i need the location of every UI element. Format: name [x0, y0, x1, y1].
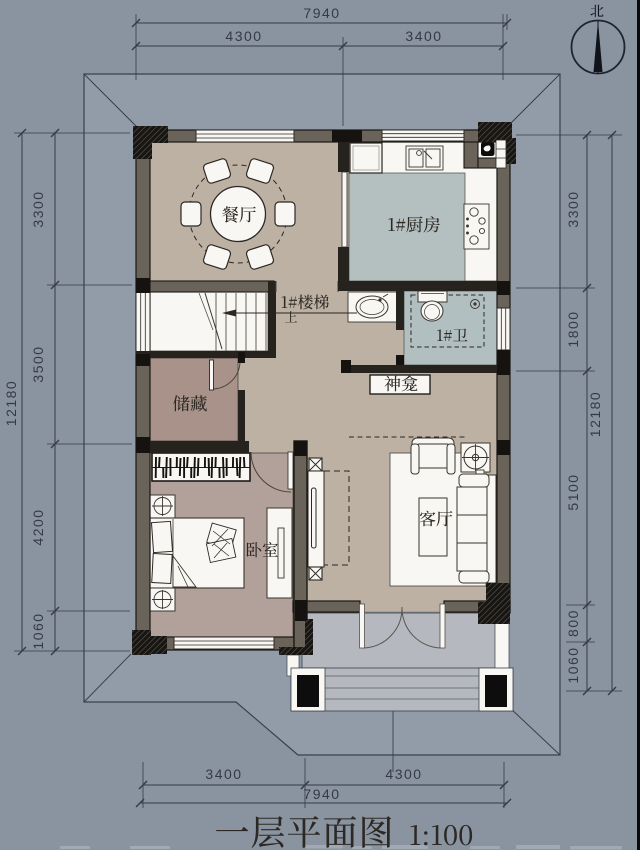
svg-text:800: 800 [565, 609, 581, 637]
svg-text:3500: 3500 [30, 345, 46, 382]
svg-text:7940: 7940 [303, 5, 340, 21]
svg-text:4300: 4300 [225, 28, 262, 44]
svg-text:12180: 12180 [587, 391, 603, 437]
svg-text:5100: 5100 [565, 473, 581, 510]
svg-text:12180: 12180 [3, 380, 19, 426]
svg-text:1060: 1060 [565, 646, 581, 683]
svg-text:3400: 3400 [205, 766, 242, 782]
svg-text:3300: 3300 [30, 190, 46, 227]
svg-text:1800: 1800 [565, 310, 581, 347]
svg-text:1060: 1060 [30, 612, 46, 649]
svg-text:4200: 4200 [30, 508, 46, 545]
svg-text:7940: 7940 [303, 786, 340, 802]
svg-text:3300: 3300 [565, 190, 581, 227]
svg-text:3400: 3400 [405, 28, 442, 44]
svg-text:4300: 4300 [385, 766, 422, 782]
